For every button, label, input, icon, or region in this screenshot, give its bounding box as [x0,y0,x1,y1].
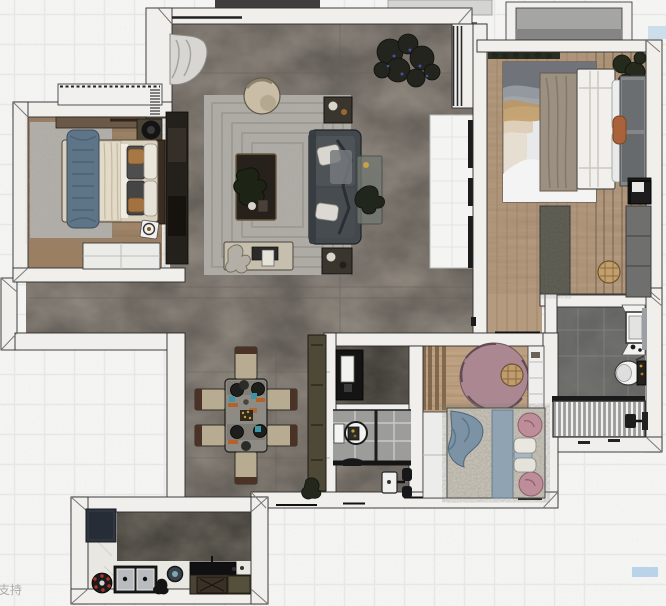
svg-text:支持: 支持 [0,582,22,597]
